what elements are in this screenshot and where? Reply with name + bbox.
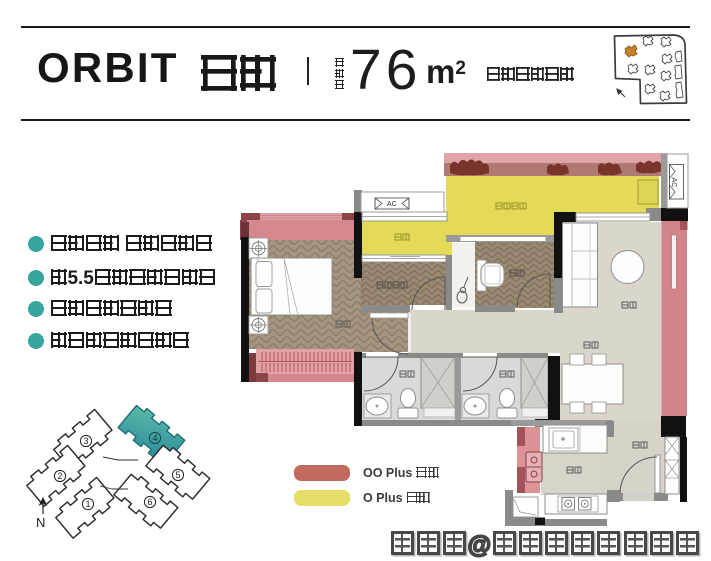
svg-text:AC: AC <box>387 201 397 208</box>
svg-text:2: 2 <box>57 471 62 481</box>
svg-text:1: 1 <box>85 499 90 509</box>
svg-text:AC: AC <box>670 178 677 188</box>
svg-text:N: N <box>36 515 45 530</box>
svg-text:4: 4 <box>152 433 157 443</box>
svg-text:3: 3 <box>83 436 88 446</box>
svg-text:5: 5 <box>175 470 180 480</box>
svg-text:6: 6 <box>147 497 152 507</box>
